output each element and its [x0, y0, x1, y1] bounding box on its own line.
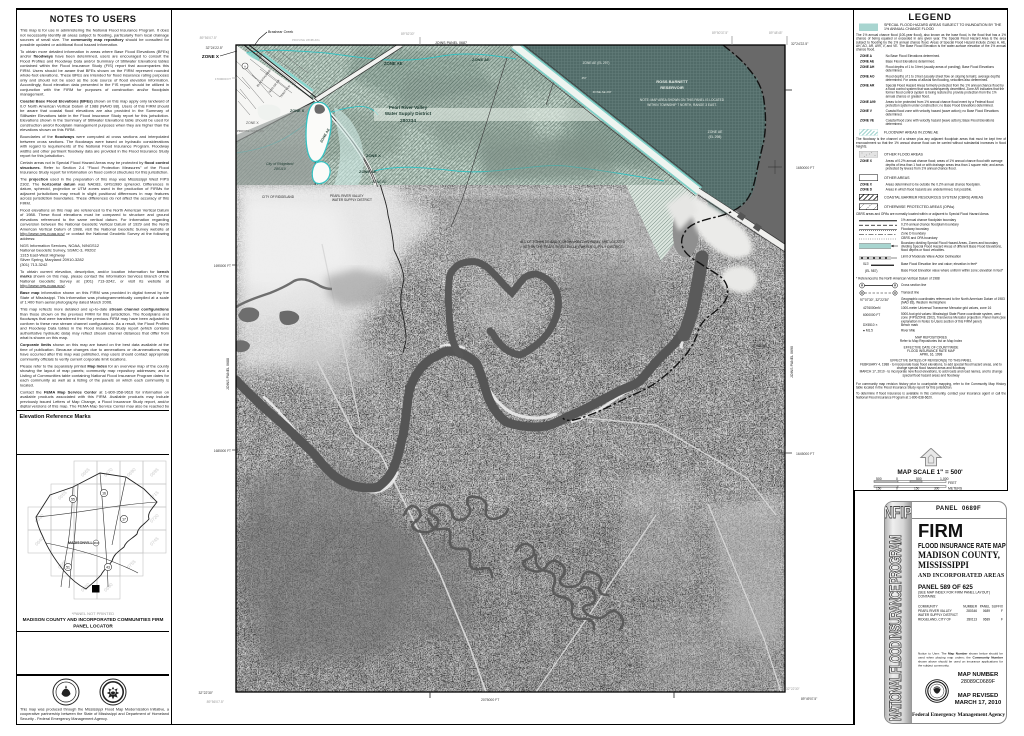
svg-text:0655: 0655: [57, 490, 68, 501]
svg-text:ZONE AE: ZONE AE: [372, 180, 387, 184]
svg-text:43: 43: [106, 565, 110, 569]
svg-text:0745: 0745: [149, 536, 160, 547]
svg-text:0680: 0680: [80, 582, 91, 593]
svg-text:89°49'07.5": 89°49'07.5": [801, 697, 817, 701]
svg-text:A: A: [861, 284, 864, 288]
svg-text:280334: 280334: [400, 118, 416, 124]
svg-text:51: 51: [66, 565, 70, 569]
svg-text:ZONE X: ZONE X: [366, 153, 381, 158]
svg-text:WATER SUPPLY DISTRICT: WATER SUPPLY DISTRICT: [332, 198, 372, 202]
svg-text:0670: 0670: [103, 467, 114, 478]
svg-text:A: A: [894, 284, 897, 288]
svg-text:2075000 FT: 2075000 FT: [481, 698, 499, 702]
svg-text:PROVINE WINBURG: PROVINE WINBURG: [292, 38, 321, 42]
svg-text:ZONE AE: ZONE AE: [384, 61, 403, 66]
svg-text:ZONE AE: ZONE AE: [472, 57, 490, 62]
svg-text:City of Ridgeland: City of Ridgeland: [266, 162, 294, 166]
svg-text:ZONE AE 297: ZONE AE 297: [593, 90, 612, 94]
svg-text:16: 16: [102, 491, 106, 495]
svg-text:89°48'45": 89°48'45": [769, 31, 783, 35]
svg-text:280110: 280110: [273, 167, 286, 171]
svg-text:ALL OF ZONES AE AND X SHOWN ON: ALL OF ZONES AE AND X SHOWN ON THIS PANE…: [520, 240, 626, 244]
svg-text:0690: 0690: [103, 582, 114, 593]
svg-text:Brashear Creek: Brashear Creek: [268, 30, 293, 34]
svg-text:NOTE: MAP AREA SHOWN ON THIS P: NOTE: MAP AREA SHOWN ON THIS PANEL IS LO…: [640, 98, 725, 102]
svg-text:1700000 FT: 1700000 FT: [215, 77, 231, 81]
svg-text:457: 457: [581, 76, 586, 80]
svg-text:ZONE AE (EL 297): ZONE AE (EL 297): [583, 61, 610, 65]
svg-text:0720: 0720: [149, 513, 160, 524]
svg-text:ZONE AE: ZONE AE: [708, 130, 723, 134]
svg-text:89°52'30": 89°52'30": [401, 32, 415, 36]
svg-text:Water Supply District: Water Supply District: [385, 111, 432, 116]
svg-text:ZONE X: ZONE X: [246, 121, 259, 125]
svg-text:0690: 0690: [126, 467, 137, 478]
svg-text:32°22'30": 32°22'30": [198, 691, 213, 695]
svg-text:ROSS BARNETT: ROSS BARNETT: [656, 79, 688, 84]
svg-text:463: 463: [93, 541, 98, 545]
svg-text:Pearl River Valley: Pearl River Valley: [389, 105, 428, 110]
svg-text:89°56'07.5": 89°56'07.5": [200, 36, 218, 40]
svg-text:17: 17: [122, 517, 126, 521]
svg-text:55: 55: [71, 497, 75, 501]
svg-text:32°24'22.5": 32°24'22.5": [206, 46, 224, 50]
svg-text:150: 150: [914, 487, 920, 490]
svg-text:NFIP: NFIP: [885, 504, 911, 522]
svg-text:89°56'07.5": 89°56'07.5": [207, 700, 225, 704]
svg-text:1645000 FT: 1645000 FT: [796, 452, 814, 456]
svg-text:JOINS PANEL 0687: JOINS PANEL 0687: [435, 41, 467, 45]
svg-text:32°24'22.5": 32°24'22.5": [791, 42, 809, 46]
svg-text:1685000 FT: 1685000 FT: [214, 449, 231, 453]
svg-text:0630: 0630: [34, 513, 45, 524]
svg-text:300: 300: [934, 487, 940, 490]
svg-text:NATIONAL FLOOD INSURANCE PROGR: NATIONAL FLOOD INSURANCE PROGRAM: [887, 535, 905, 721]
svg-text:WITHIN THE PEARL RIVER VALLEY: WITHIN THE PEARL RIVER VALLEY WATER SUPP…: [523, 245, 623, 249]
svg-text:JOINS PANEL 0690: JOINS PANEL 0690: [790, 346, 794, 378]
svg-text:1695000 FT: 1695000 FT: [214, 264, 231, 268]
svg-text:1650000 FT: 1650000 FT: [796, 166, 814, 170]
svg-text:RESERVOIR: RESERVOIR: [660, 85, 684, 90]
svg-text:WITHIN TOWNSHIP 7 NORTH, RANGE: WITHIN TOWNSHIP 7 NORTH, RANGE 3 EAST.: [647, 103, 717, 107]
svg-text:32°22'30": 32°22'30": [786, 687, 800, 691]
svg-text:ZONE AE: ZONE AE: [752, 344, 767, 348]
svg-text:0695: 0695: [149, 467, 160, 478]
svg-text:FEET: FEET: [948, 481, 957, 485]
svg-text:A: A: [244, 65, 246, 69]
svg-text:0: 0: [896, 487, 898, 490]
svg-text:89°50'37.5": 89°50'37.5": [712, 31, 728, 35]
svg-text:150: 150: [876, 487, 882, 490]
svg-text:JOINS PANEL 0688: JOINS PANEL 0688: [226, 358, 230, 390]
svg-text:ZONE X: ZONE X: [202, 54, 220, 59]
svg-text:ZONE AE: ZONE AE: [359, 169, 377, 174]
svg-text:METERS: METERS: [948, 486, 963, 490]
svg-text:ZONE X: ZONE X: [290, 109, 305, 113]
svg-text:CITY OF RIDGELAND: CITY OF RIDGELAND: [262, 195, 295, 199]
svg-text:MADISONVILLE: MADISONVILLE: [68, 541, 96, 545]
svg-text:0665: 0665: [80, 467, 91, 478]
svg-text:(EL 298): (EL 298): [709, 135, 722, 139]
